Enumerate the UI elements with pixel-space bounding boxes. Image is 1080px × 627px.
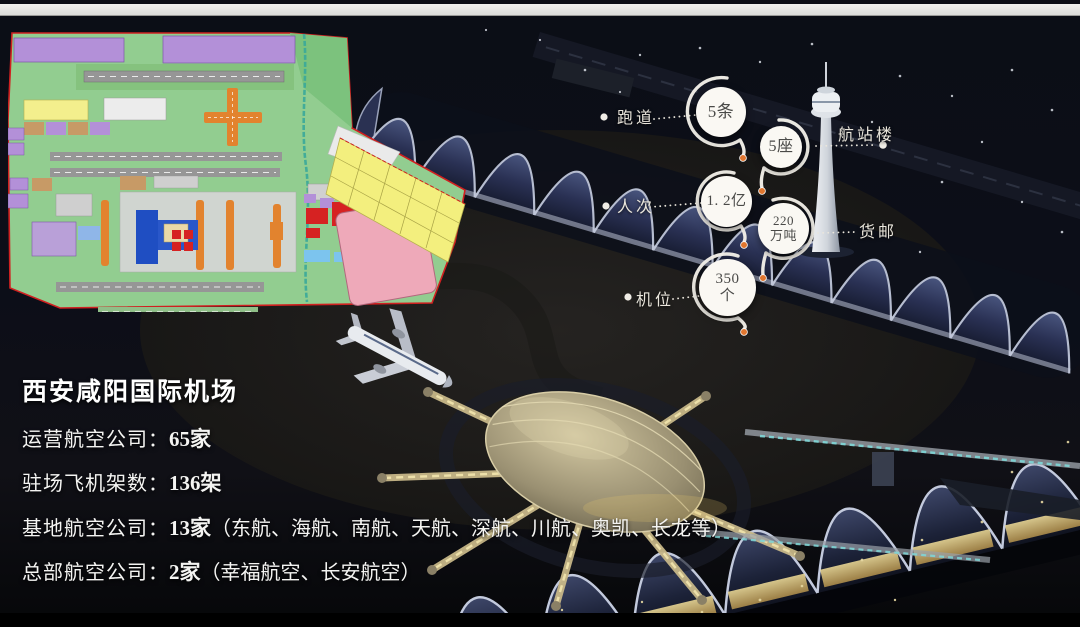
- stat-bubble-runways: 5条: [696, 87, 746, 137]
- stat-bubble-cargo: 220 万吨: [758, 203, 809, 254]
- fact-value: 65家: [169, 427, 211, 451]
- airport-info-block: 西安咸阳国际机场 运营航空公司：65家 驻场飞机架数：136架 基地航空公司：1…: [22, 372, 731, 586]
- page-title: 西安咸阳国际机场: [22, 372, 731, 408]
- plan-zone-purple: [163, 36, 295, 63]
- label-stands: 机位: [636, 286, 674, 310]
- slide-canvas: 5条 5座 1. 2亿 220 万吨 350 个 跑道 航站楼 人次 货邮 机位…: [0, 0, 1080, 627]
- fact-value: 136架: [169, 471, 222, 495]
- fact-label: 基地航空公司：: [22, 518, 169, 540]
- fact-value: 13家: [169, 516, 211, 540]
- fact-label: 运营航空公司：: [22, 429, 169, 451]
- fact-base-airlines: 基地航空公司：13家（东航、海航、南航、天航、深航、川航、奥凯、长龙等）: [22, 512, 731, 542]
- fact-detail: （东航、海航、南航、天航、深航、川航、奥凯、长龙等）: [211, 518, 731, 540]
- fact-based-aircraft: 驻场飞机架数：136架: [22, 467, 731, 497]
- stat-bubble-terminals: 5座: [760, 126, 802, 168]
- fact-label: 驻场飞机架数：: [22, 473, 169, 495]
- fact-label: 总部航空公司：: [22, 562, 169, 584]
- stat-bubble-stands: 350 个: [699, 259, 756, 316]
- label-terminals: 航站楼: [838, 121, 895, 145]
- fact-hq-airlines: 总部航空公司：2家（幸福航空、长安航空）: [22, 556, 731, 586]
- fact-detail: （幸福航空、长安航空）: [201, 562, 421, 584]
- viewer-top-strip: [0, 4, 1080, 16]
- fact-value: 2家: [169, 560, 201, 584]
- fact-operating-airlines: 运营航空公司：65家: [22, 423, 731, 453]
- stat-bubble-passengers: 1. 2亿: [701, 176, 752, 227]
- plan-zone-purple: [14, 38, 124, 62]
- label-runways: 跑道: [617, 104, 655, 128]
- airport-master-plan-map: [8, 26, 466, 312]
- label-cargo: 货邮: [859, 218, 897, 242]
- bottom-black-bar: [0, 613, 1080, 627]
- label-passengers: 人次: [617, 193, 655, 217]
